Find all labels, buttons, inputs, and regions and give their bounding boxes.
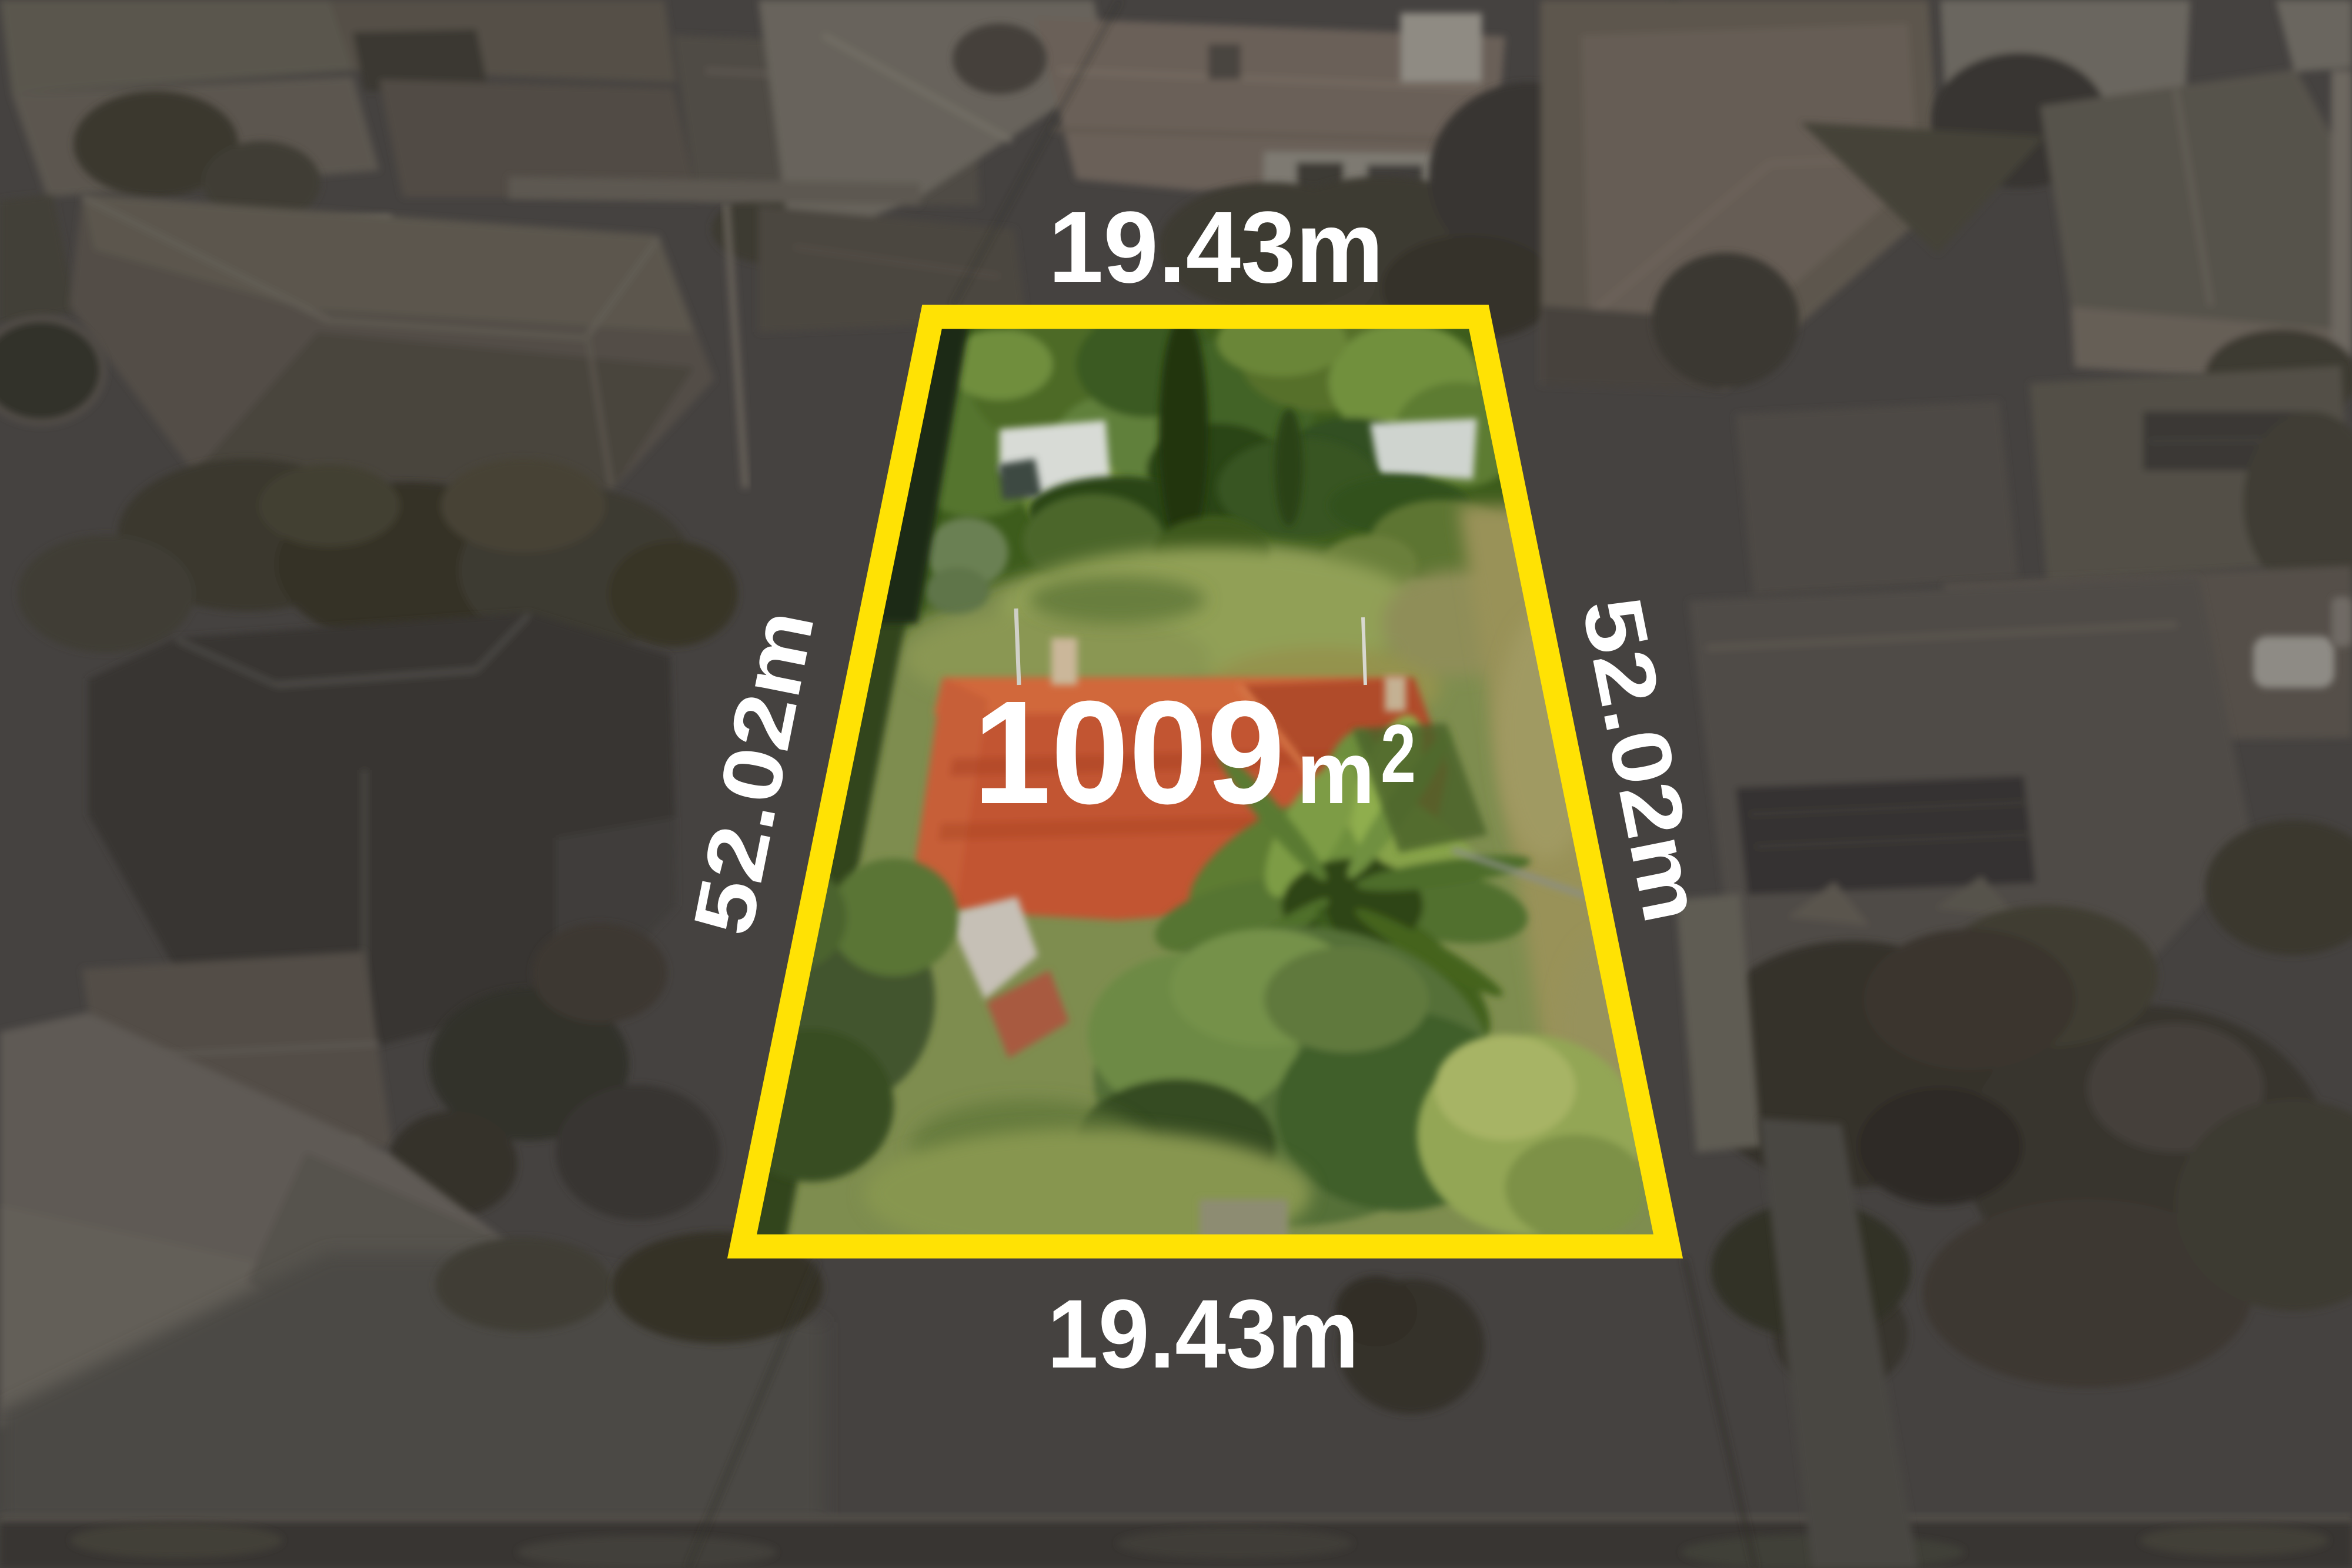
svg-text:2: 2: [1381, 707, 1416, 800]
svg-text:m: m: [1297, 723, 1375, 822]
svg-text:19.43m: 19.43m: [1048, 190, 1384, 304]
svg-text:19.43m: 19.43m: [1047, 1280, 1359, 1389]
svg-text:1009: 1009: [973, 670, 1285, 834]
